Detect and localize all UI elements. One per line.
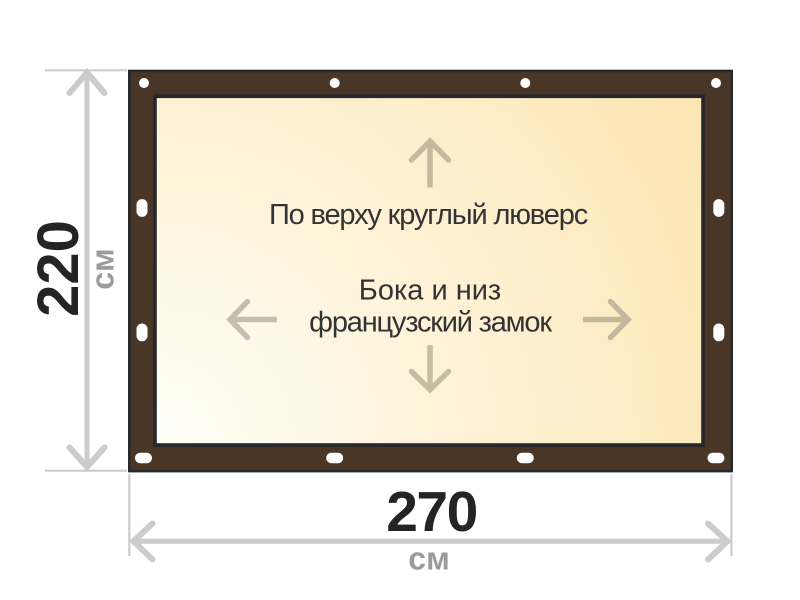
svg-text:см: см xyxy=(408,541,449,577)
svg-text:По верху круглый люверс: По верху круглый люверс xyxy=(269,199,588,231)
svg-text:французский замок: французский замок xyxy=(309,307,552,339)
svg-text:Бока и низ: Бока и низ xyxy=(359,275,501,307)
svg-text:см: см xyxy=(85,248,121,289)
svg-text:270: 270 xyxy=(386,480,477,544)
svg-text:220: 220 xyxy=(26,220,91,317)
